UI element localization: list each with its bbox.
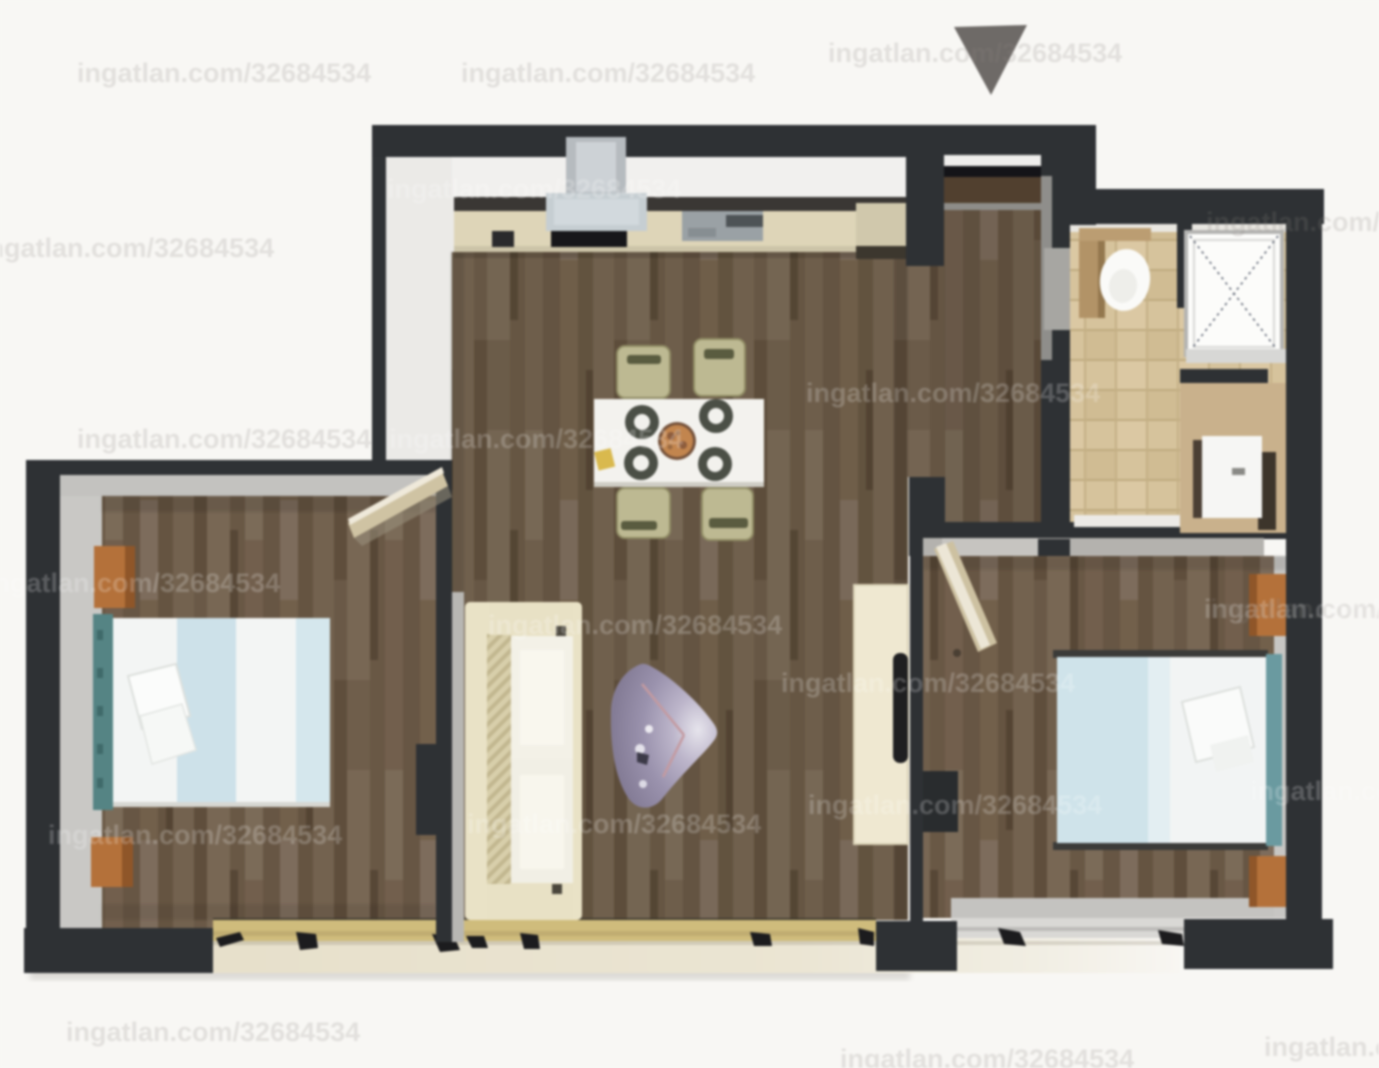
svg-text:ingatlan.com/32684534: ingatlan.com/32684534 [48,820,342,850]
svg-text:ingatlan.com/32684534: ingatlan.com/32684534 [1264,1032,1379,1062]
svg-text:ingatlan.com/32684534: ingatlan.com/32684534 [66,1017,360,1047]
svg-text:ingatlan.com/32684534: ingatlan.com/32684534 [828,38,1122,68]
svg-text:ingatlan.com/32684534: ingatlan.com/32684534 [806,378,1100,408]
svg-text:ingatlan.com/32684534: ingatlan.com/32684534 [77,424,371,454]
svg-text:ingatlan.com/32684534: ingatlan.com/32684534 [781,668,1075,698]
svg-text:ingatlan.com/32684534: ingatlan.com/32684534 [0,233,274,263]
svg-text:ingatlan.com/32684534: ingatlan.com/32684534 [467,809,761,839]
svg-text:ingatlan.com/32684534: ingatlan.com/32684534 [0,568,280,598]
svg-text:ingatlan.com/32684534: ingatlan.com/32684534 [389,424,683,454]
svg-text:ingatlan.com/32684534: ingatlan.com/32684534 [387,174,681,204]
svg-text:ingatlan.com/32684534: ingatlan.com/32684534 [488,610,782,640]
svg-text:ingatlan.com/32684534: ingatlan.com/32684534 [1206,207,1379,237]
svg-text:ingatlan.com/32684534: ingatlan.com/32684534 [808,790,1102,820]
svg-text:ingatlan.com/32684534: ingatlan.com/32684534 [1250,776,1379,806]
svg-text:ingatlan.com/32684534: ingatlan.com/32684534 [77,58,371,88]
svg-text:ingatlan.com/32684534: ingatlan.com/32684534 [840,1044,1134,1068]
svg-text:ingatlan.com/32684534: ingatlan.com/32684534 [1204,594,1379,624]
svg-text:ingatlan.com/32684534: ingatlan.com/32684534 [461,58,755,88]
